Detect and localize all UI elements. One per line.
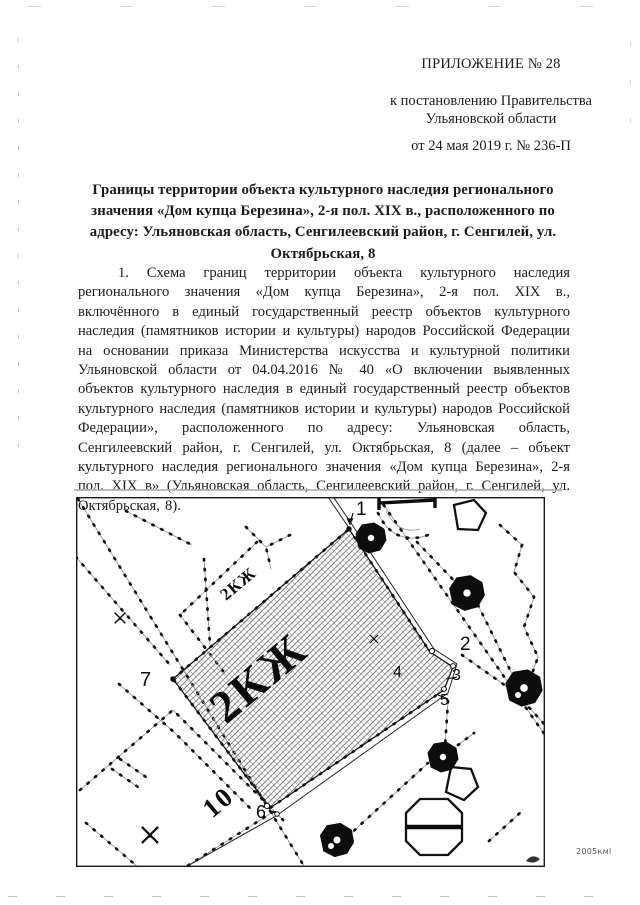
point-label-3: 3 [452, 667, 461, 684]
point-label-4: 4 [393, 664, 402, 681]
decree-line-1: к постановлению Правительства [382, 92, 600, 110]
scan-artifact-bottom [8, 896, 618, 897]
appendix-header: ПРИЛОЖЕНИЕ № 28 к постановлению Правител… [382, 55, 600, 155]
point-label-1: 1 [356, 499, 367, 520]
point-label-7: 7 [140, 669, 151, 691]
house-number-label: 10 [197, 781, 240, 824]
decree-date: от 24 мая 2019 г. № 236-П [382, 137, 600, 155]
map-corner-note: 2005кмl [576, 847, 612, 856]
boundary-scheme-map: 2КЖ 2КЖ 10 1 2 3 4 5 6 7 [76, 497, 545, 867]
map-top-scan-line [74, 489, 562, 491]
point-label-2: 2 [460, 634, 471, 655]
scan-artifact-left [18, 38, 19, 468]
scan-artifact-right [630, 42, 631, 152]
document-title: Границы территории объекта культурного н… [76, 180, 570, 265]
document-page: ПРИЛОЖЕНИЕ № 28 к постановлению Правител… [0, 0, 640, 905]
scan-artifact-top [28, 6, 598, 7]
point-label-6: 6 [256, 802, 266, 822]
appendix-number: ПРИЛОЖЕНИЕ № 28 [382, 55, 600, 73]
territory-hatched-polygon [173, 529, 453, 808]
body-paragraph: 1. Схема границ территории объекта культ… [78, 264, 570, 516]
neighbor-building-label: 2КЖ [216, 563, 259, 604]
decree-line-2: Ульяновской области [382, 110, 600, 128]
point-label-5: 5 [440, 692, 449, 709]
